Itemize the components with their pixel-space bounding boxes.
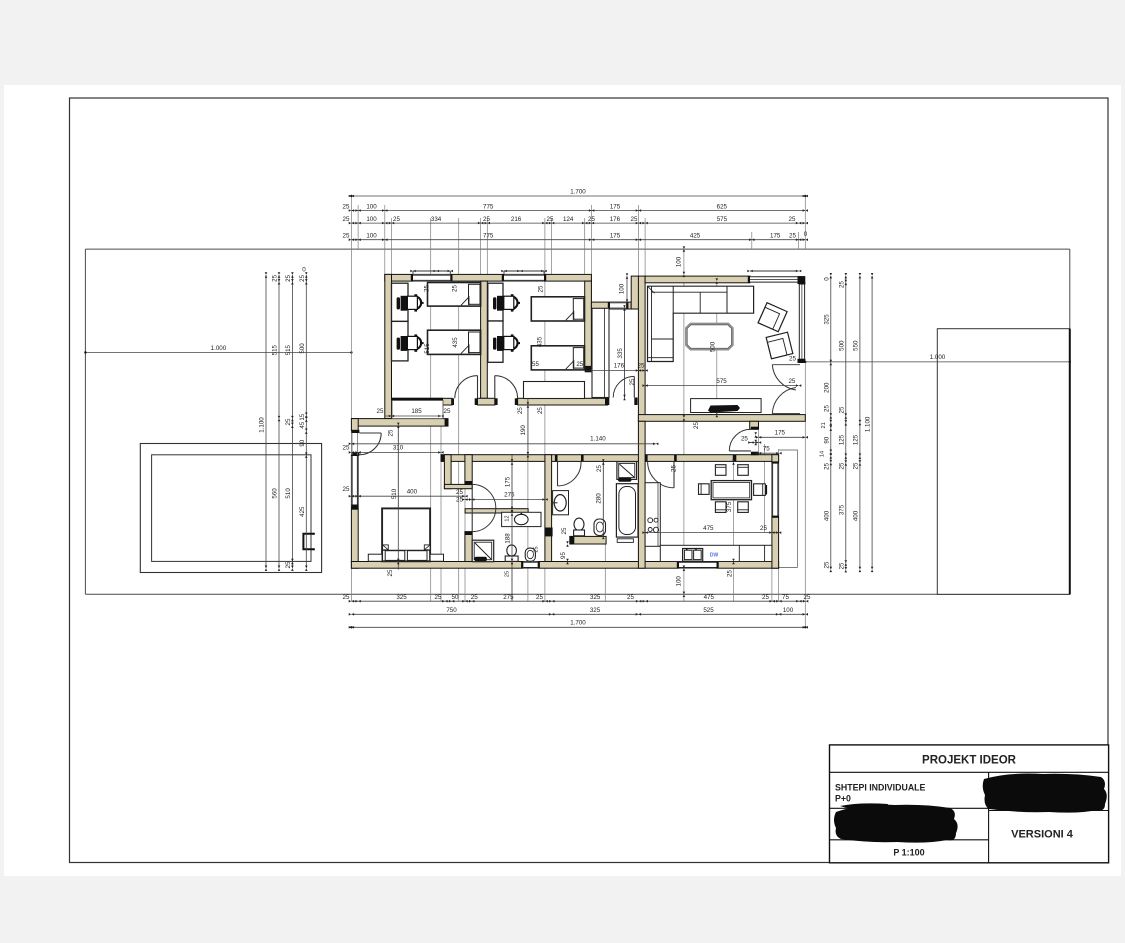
svg-text:90: 90 — [823, 436, 830, 443]
svg-text:25: 25 — [838, 281, 845, 288]
svg-text:15: 15 — [299, 413, 306, 420]
svg-text:0: 0 — [302, 267, 306, 274]
svg-text:425: 425 — [299, 506, 306, 517]
svg-text:1.100: 1.100 — [865, 416, 872, 432]
svg-text:500: 500 — [299, 343, 306, 354]
svg-text:25: 25 — [838, 462, 845, 469]
svg-text:25: 25 — [629, 378, 636, 385]
svg-text:275: 275 — [504, 492, 515, 499]
svg-text:25: 25 — [762, 594, 769, 601]
svg-text:25: 25 — [343, 445, 350, 452]
svg-text:75: 75 — [782, 594, 789, 601]
svg-text:400: 400 — [823, 510, 830, 521]
svg-text:25: 25 — [627, 594, 634, 601]
svg-text:12: 12 — [504, 515, 510, 521]
svg-text:185: 185 — [411, 408, 422, 415]
svg-text:425: 425 — [690, 233, 701, 240]
svg-text:435: 435 — [536, 336, 543, 347]
svg-text:25: 25 — [561, 527, 568, 534]
svg-text:25: 25 — [741, 436, 748, 443]
svg-text:DW: DW — [710, 553, 719, 559]
svg-text:550: 550 — [852, 340, 859, 351]
svg-text:25: 25 — [505, 571, 511, 577]
svg-text:1.000: 1.000 — [211, 345, 227, 352]
svg-text:25: 25 — [456, 497, 463, 504]
svg-text:25: 25 — [727, 570, 734, 577]
svg-text:25: 25 — [387, 569, 394, 576]
svg-text:25: 25 — [343, 233, 350, 240]
svg-text:124: 124 — [563, 216, 574, 223]
svg-text:25: 25 — [343, 216, 350, 223]
svg-text:25: 25 — [435, 594, 442, 601]
svg-text:475: 475 — [704, 594, 715, 601]
svg-text:25: 25 — [596, 465, 603, 472]
svg-text:1.000: 1.000 — [930, 354, 946, 361]
svg-text:335: 335 — [617, 348, 624, 359]
svg-text:375: 375 — [838, 504, 845, 515]
svg-text:1.700: 1.700 — [570, 188, 586, 195]
svg-text:25: 25 — [693, 422, 700, 429]
svg-text:25: 25 — [343, 486, 350, 493]
svg-text:100: 100 — [366, 233, 377, 240]
svg-text:25: 25 — [631, 216, 638, 223]
svg-text:25: 25 — [424, 285, 431, 292]
svg-text:325: 325 — [590, 607, 601, 614]
svg-text:25: 25 — [823, 462, 830, 469]
svg-text:625: 625 — [717, 203, 728, 210]
svg-text:175: 175 — [504, 476, 511, 487]
svg-text:25: 25 — [534, 546, 540, 552]
svg-text:400: 400 — [852, 510, 859, 521]
svg-text:0: 0 — [824, 277, 831, 281]
svg-text:25: 25 — [285, 418, 292, 425]
svg-text:14: 14 — [820, 451, 826, 457]
svg-text:55: 55 — [532, 361, 539, 368]
svg-text:175: 175 — [770, 233, 781, 240]
svg-text:525: 525 — [703, 607, 714, 614]
svg-text:VERSIONI 4: VERSIONI 4 — [1011, 829, 1074, 841]
svg-text:25: 25 — [576, 361, 583, 368]
svg-text:25: 25 — [272, 274, 279, 281]
svg-text:100: 100 — [675, 256, 682, 267]
svg-text:25: 25 — [444, 408, 451, 415]
svg-text:95: 95 — [560, 552, 567, 559]
svg-text:500: 500 — [710, 341, 717, 352]
svg-text:334: 334 — [431, 216, 442, 223]
svg-text:P 1:100: P 1:100 — [893, 848, 924, 858]
svg-text:175: 175 — [610, 203, 621, 210]
svg-text:275: 275 — [503, 594, 514, 601]
svg-text:25: 25 — [538, 285, 545, 292]
svg-text:25: 25 — [537, 407, 544, 414]
svg-text:510: 510 — [285, 488, 292, 499]
svg-text:25: 25 — [838, 562, 845, 569]
svg-text:25: 25 — [452, 285, 459, 292]
svg-text:1.100: 1.100 — [258, 417, 265, 433]
svg-text:1.700: 1.700 — [570, 620, 586, 627]
svg-text:280: 280 — [596, 493, 603, 504]
svg-text:1.140: 1.140 — [590, 435, 606, 442]
svg-text:188: 188 — [504, 533, 511, 544]
svg-text:25: 25 — [547, 216, 554, 223]
svg-text:775: 775 — [483, 203, 494, 210]
svg-text:25: 25 — [517, 407, 524, 414]
svg-text:510: 510 — [391, 488, 398, 499]
svg-text:515: 515 — [424, 343, 431, 354]
svg-text:25: 25 — [343, 203, 350, 210]
svg-text:775: 775 — [483, 233, 494, 240]
svg-text:25: 25 — [285, 561, 292, 568]
svg-text:25: 25 — [343, 594, 350, 601]
svg-text:175: 175 — [610, 233, 621, 240]
svg-text:25: 25 — [393, 216, 400, 223]
svg-text:515: 515 — [285, 344, 292, 355]
svg-text:25: 25 — [483, 216, 490, 223]
svg-text:50: 50 — [452, 594, 459, 601]
svg-text:25: 25 — [838, 406, 845, 413]
svg-text:25: 25 — [789, 356, 796, 363]
svg-text:175: 175 — [775, 429, 786, 436]
svg-text:25: 25 — [377, 408, 384, 415]
svg-text:90: 90 — [299, 439, 306, 446]
svg-text:575: 575 — [716, 378, 727, 385]
svg-text:25: 25 — [456, 489, 463, 496]
svg-text:21: 21 — [821, 422, 827, 428]
svg-text:75: 75 — [763, 445, 770, 452]
svg-text:500: 500 — [838, 340, 845, 351]
svg-text:125: 125 — [852, 434, 859, 445]
svg-text:25: 25 — [285, 274, 292, 281]
svg-text:325: 325 — [396, 594, 407, 601]
svg-text:25: 25 — [638, 363, 645, 370]
svg-text:25: 25 — [789, 233, 796, 240]
svg-text:P+0: P+0 — [835, 794, 851, 804]
svg-text:100: 100 — [366, 203, 377, 210]
svg-text:25: 25 — [299, 274, 306, 281]
svg-text:45: 45 — [299, 421, 306, 428]
svg-text:25: 25 — [804, 594, 811, 601]
svg-text:25: 25 — [760, 525, 767, 532]
svg-text:100: 100 — [783, 607, 794, 614]
svg-text:100: 100 — [618, 283, 625, 294]
svg-text:375: 375 — [726, 501, 733, 512]
svg-text:100: 100 — [675, 576, 682, 587]
svg-text:575: 575 — [717, 216, 728, 223]
svg-text:325: 325 — [590, 594, 601, 601]
svg-text:25: 25 — [536, 594, 543, 601]
svg-text:176: 176 — [614, 363, 625, 370]
svg-text:SHTEPI INDIVIDUALE: SHTEPI INDIVIDUALE — [835, 783, 926, 793]
svg-text:200: 200 — [823, 382, 830, 393]
svg-text:0: 0 — [804, 231, 808, 238]
svg-text:475: 475 — [703, 525, 714, 532]
svg-text:100: 100 — [366, 216, 377, 223]
svg-text:190: 190 — [520, 425, 527, 436]
svg-text:515: 515 — [272, 344, 279, 355]
svg-text:25: 25 — [671, 465, 678, 472]
svg-text:25: 25 — [387, 429, 394, 436]
svg-text:25: 25 — [823, 405, 830, 412]
svg-text:125: 125 — [838, 434, 845, 445]
svg-text:176: 176 — [610, 216, 621, 223]
svg-text:25: 25 — [823, 561, 830, 568]
svg-text:25: 25 — [852, 462, 859, 469]
svg-text:435: 435 — [452, 337, 459, 348]
svg-text:400: 400 — [407, 488, 418, 495]
svg-text:750: 750 — [446, 607, 457, 614]
svg-text:216: 216 — [511, 216, 522, 223]
svg-text:25: 25 — [471, 594, 478, 601]
svg-text:25: 25 — [588, 216, 595, 223]
svg-text:325: 325 — [823, 314, 830, 325]
svg-text:PROJEKT IDEOR: PROJEKT IDEOR — [922, 755, 1017, 767]
svg-text:560: 560 — [272, 488, 279, 499]
svg-text:25: 25 — [789, 216, 796, 223]
svg-text:25: 25 — [788, 378, 795, 385]
